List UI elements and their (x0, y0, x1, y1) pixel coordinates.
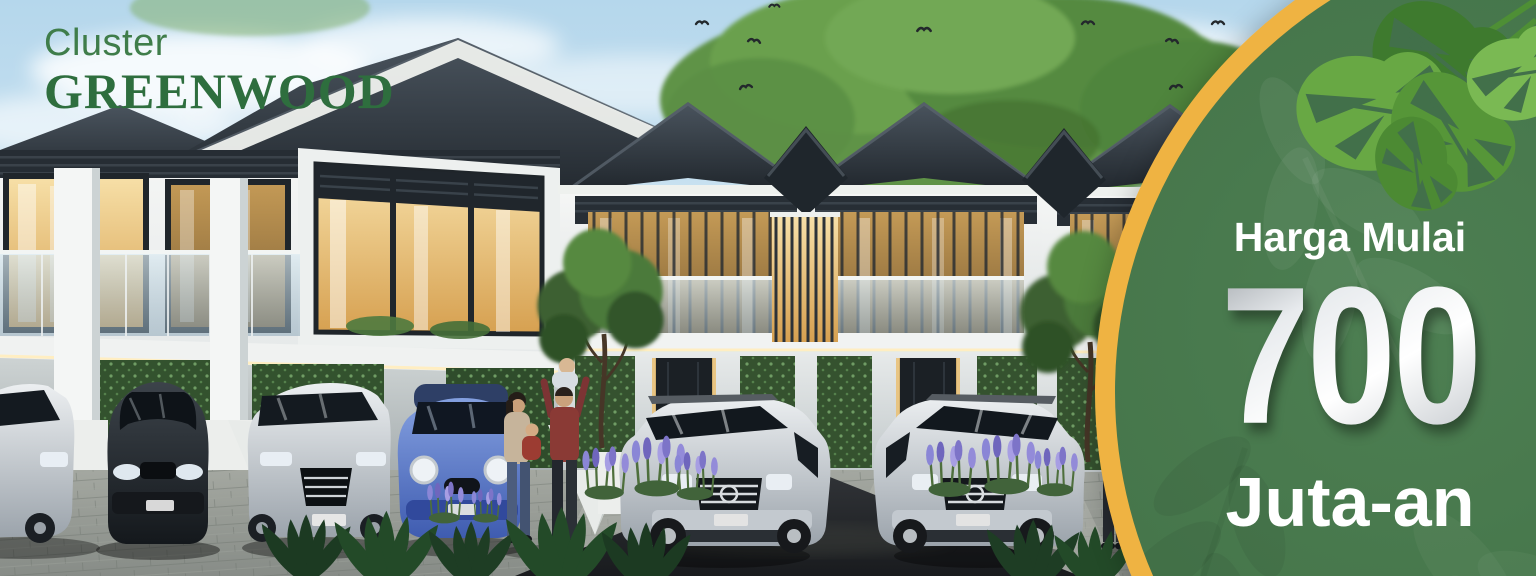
badge-suffix-text: Juta-an (1150, 462, 1536, 542)
badge-price-text: 700 (1150, 258, 1536, 453)
cluster-title-name: GREENWOOD (44, 66, 395, 116)
cluster-title: Cluster GREENWOOD (44, 24, 395, 116)
centre-louver-bay (770, 212, 840, 342)
promo-banner: Harga Mulai 700 Juta-an Cluster GREENWOO… (0, 0, 1536, 576)
glass-balcony (0, 250, 300, 336)
bay-window (298, 148, 560, 350)
cluster-title-prefix: Cluster (44, 24, 395, 62)
monstera-leaves-icon (1236, 0, 1536, 240)
